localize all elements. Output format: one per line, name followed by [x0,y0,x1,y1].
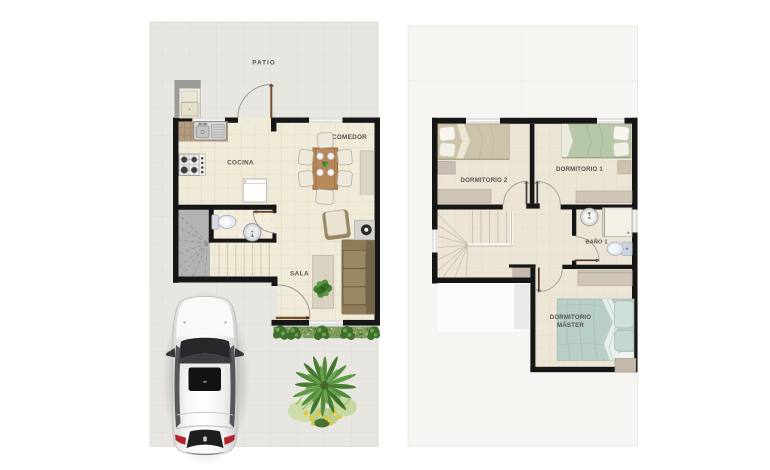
svg-text:COMEDOR: COMEDOR [332,134,367,141]
svg-text:DORMITORIO 2: DORMITORIO 2 [461,177,508,184]
svg-text:COCINA: COCINA [227,160,254,167]
svg-text:MÁSTER: MÁSTER [557,322,584,329]
svg-text:DORMITORIO: DORMITORIO [550,314,592,321]
svg-text:SALA: SALA [290,271,309,278]
svg-text:DORMITORIO 1: DORMITORIO 1 [556,166,603,173]
svg-text:BAÑO 1: BAÑO 1 [585,239,607,246]
svg-text:PATIO: PATIO [252,60,276,67]
